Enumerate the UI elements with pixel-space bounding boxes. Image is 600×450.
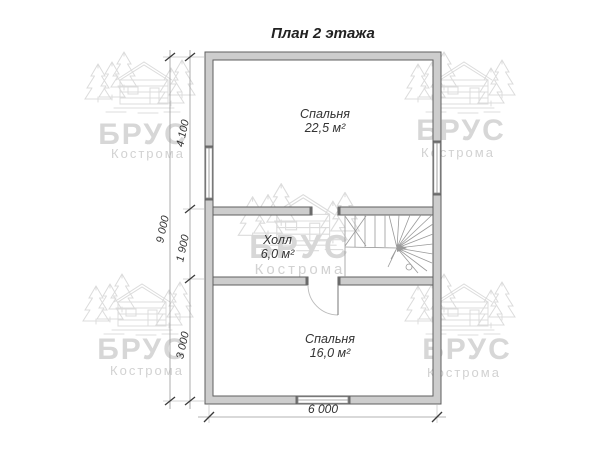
stair-direction-marker xyxy=(397,244,407,252)
watermark-city-text: Кострома xyxy=(110,363,184,378)
interior-wall xyxy=(213,207,312,215)
door-swing-arc xyxy=(308,285,338,315)
watermark-city-text: Кострома xyxy=(255,261,346,278)
cabin-logo-icon xyxy=(85,52,195,113)
room-name: Холл xyxy=(230,234,325,248)
cabin-logo-icon xyxy=(405,52,515,113)
interior-wall xyxy=(213,277,308,285)
door-group xyxy=(308,285,338,315)
window xyxy=(206,148,212,198)
room-label-bedroom-bottom: Спальня 16,0 м² xyxy=(255,333,405,360)
dimension-label-width: 6 000 xyxy=(308,402,338,416)
floorplan-page: БРУС Кострома БРУС Кострома БРУС Костром… xyxy=(0,0,600,450)
page-title: План 2 этажа xyxy=(205,25,441,42)
stair-newel-post xyxy=(406,264,412,270)
dimension-label-middle-segment: 1 900 xyxy=(174,233,192,263)
interior-wall xyxy=(338,277,433,285)
watermark-brand-text: БРУС xyxy=(97,333,187,366)
room-area: 22,5 м² xyxy=(250,122,400,136)
room-area: 16,0 м² xyxy=(255,347,405,361)
room-label-bedroom-top: Спальня 22,5 м² xyxy=(250,108,400,135)
room-label-hall: Холл 6,0 м² xyxy=(230,234,325,261)
room-area: 6,0 м² xyxy=(230,248,325,262)
room-name: Спальня xyxy=(255,333,405,347)
watermark-layer: БРУС Кострома БРУС Кострома БРУС Костром… xyxy=(83,52,515,380)
staircase-group xyxy=(345,215,433,277)
cabin-logo-icon xyxy=(83,274,193,335)
room-name: Спальня xyxy=(250,108,400,122)
watermark-city-text: Кострома xyxy=(421,145,495,160)
floorplan-canvas: БРУС Кострома БРУС Кострома БРУС Костром… xyxy=(0,0,600,450)
interior-wall xyxy=(338,207,433,215)
watermark-city-text: Кострома xyxy=(111,146,185,161)
watermark-brand-text: БРУС xyxy=(416,114,506,147)
window xyxy=(434,143,440,193)
dimension-label-total-height: 9 000 xyxy=(154,214,172,244)
